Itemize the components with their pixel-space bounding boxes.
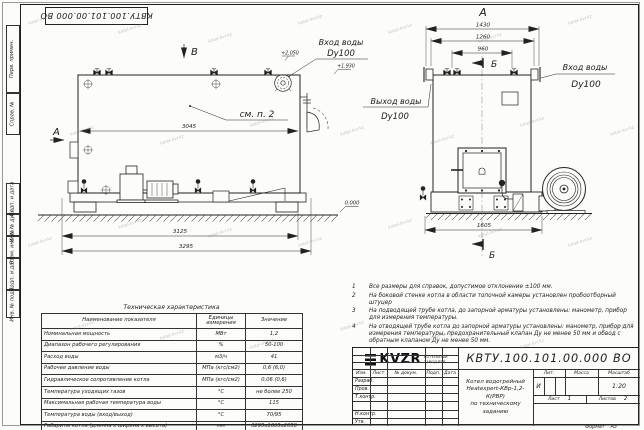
valve-handle-icon [250, 180, 256, 193]
scale-value: 1:20 [598, 377, 640, 395]
param-value: 1,2 [246, 329, 303, 341]
tech-table: Наименование показателя Единицы измерени… [41, 313, 303, 430]
notes-list: 1 Все размеры для справок, допустимое от… [349, 284, 636, 346]
format-value: А3 [611, 425, 617, 430]
table-row: Рабочее давление воды МПа (кгс/см2) 0,6 … [42, 363, 303, 375]
param-value: 115 [246, 398, 303, 410]
doc-name-line: Котел водогрейный [466, 379, 525, 386]
note-text: На боковой стенке котла в области топочн… [369, 293, 636, 307]
inlet-dn-front: Dy100 [571, 80, 601, 90]
valve-icon [454, 69, 461, 75]
section-mark-b-top: Б [491, 60, 497, 70]
param-units: °С [197, 386, 246, 398]
inlet-label-side: Вход воды [319, 38, 364, 47]
valve-icon [511, 69, 518, 75]
grid-line [353, 355, 458, 356]
param-value: 70/95 [246, 410, 303, 422]
col-header: Единицы измерения [197, 314, 246, 329]
inlet-dn-side: Dy100 [327, 49, 355, 59]
side-view [38, 75, 338, 222]
view-mark-a: А [52, 127, 60, 138]
level-mark-zero: 0.000 [345, 201, 361, 207]
param-name: Гидравлическое сопротивление котла [42, 375, 197, 387]
param-units: мм [197, 421, 246, 430]
lit-value: И [533, 377, 544, 395]
valve-handle-icon [420, 187, 426, 200]
note-number: 4 [349, 324, 369, 345]
table-header-row: Наименование показателя Единицы измерени… [42, 314, 303, 329]
see-note-label: см. п. 2 [240, 110, 275, 120]
param-value: 50-100 [246, 340, 303, 352]
sheets-label: Листов [599, 397, 616, 402]
valve-icon [444, 69, 451, 75]
mass-header: Масса [565, 369, 598, 377]
note-item: 2 На боковой стенке котла в области топо… [349, 293, 636, 307]
front-view [424, 56, 592, 257]
sheets-cell: Листов 2 [586, 395, 640, 403]
table-row: Температура уходящих газов °С не более 2… [42, 386, 303, 398]
title-block: Изм. Лист № докум. Подп. Дата Разраб. Пр… [352, 347, 639, 425]
dim-960: 960 [478, 47, 489, 53]
param-units: МПа (кгс/см2) [197, 363, 246, 375]
role-nkontr: Н.контр. [353, 410, 387, 418]
front-view-label: А [478, 6, 487, 19]
param-name: Температура уходящих газов [42, 386, 197, 398]
note-item: 1 Все размеры для справок, допустимое от… [349, 284, 636, 291]
note-number: 3 [349, 308, 369, 322]
doc-name-line: Heatexpert-КВр-1,2-К(РВР) [458, 386, 533, 401]
grid-line [387, 348, 388, 426]
table-row: Максимальная рабочая температура воды °С… [42, 398, 303, 410]
table-row: Температура воды (вход/выход) °С 70/95 [42, 410, 303, 422]
param-units: % [197, 340, 246, 352]
dim-1605: 1605 [477, 223, 492, 229]
role-utv: Утв. [353, 418, 387, 426]
param-name: Рабочее давление воды [42, 363, 197, 375]
param-units: м3/ч [197, 352, 246, 364]
level-mark-1930: +1.930 [337, 64, 355, 70]
view-mark-b: В [191, 47, 198, 58]
lit-header: Лит. [533, 369, 565, 377]
valve-icon [211, 69, 218, 75]
rev-header-list: Лист [370, 369, 387, 377]
level-mark-2050: +2.050 [281, 51, 299, 57]
valve-handle-icon [81, 180, 87, 193]
role-prov: Пров. [353, 385, 387, 393]
param-units: °С [197, 410, 246, 422]
param-name: Максимальная рабочая температура воды [42, 398, 197, 410]
note-item: 4 На отводящей трубе котла до запорной а… [349, 324, 636, 345]
sheet-label: Лист [548, 397, 560, 402]
datum-target-icon [101, 185, 111, 195]
dim-3125: 3125 [173, 229, 188, 235]
valve-icon [94, 69, 101, 75]
datum-target-icon [83, 79, 93, 89]
col-header: Наименование показателя [42, 314, 197, 329]
grid-line [555, 377, 556, 395]
grid-line [425, 348, 426, 426]
side-view-dimensions [50, 44, 368, 255]
doc-name: Котел водогрейный Heatexpert-КВр-1,2-К(Р… [458, 369, 533, 426]
rev-header-podp: Подп. [425, 369, 442, 377]
outlet-label-front: Выход воды [371, 97, 422, 106]
tech-table-title: Техническая характеристика [41, 304, 302, 311]
outlet-dn-front: Dy100 [381, 112, 409, 122]
note-item: 3 На подводящей трубе котла, до запорной… [349, 308, 636, 322]
sheet-cell: Лист 1 [533, 395, 586, 403]
param-units: МВт [197, 329, 246, 341]
param-name: Температура воды (вход/выход) [42, 410, 197, 422]
param-units: МПа (кгс/см2) [197, 375, 246, 387]
sheets-value: 2 [624, 396, 627, 402]
role-razrab: Разраб. [353, 377, 387, 385]
role-blank [353, 401, 387, 410]
param-value: 0,06 (0,6) [246, 375, 303, 387]
note-text: Все размеры для справок, допустимое откл… [369, 284, 636, 291]
table-row: Расход воды м3/ч 41 [42, 352, 303, 364]
datum-target-icon [83, 145, 93, 155]
param-value: не более 250 [246, 386, 303, 398]
param-value: 3295х1605х2050 [246, 421, 303, 430]
datum-target-icon [211, 79, 221, 89]
doc-name-line: по техническому заданию [458, 401, 533, 416]
doc-number: КВТУ.100.101.00.000 ВО [458, 348, 640, 369]
format-label-cell: Формат А3 [566, 425, 636, 430]
table-row: Гидравлическое сопротивление котла МПа (… [42, 375, 303, 387]
table-row: Габариты котла (длинна х ширина х высота… [42, 421, 303, 430]
tech-characteristics: Техническая характеристика Наименование … [41, 304, 302, 430]
param-name: Габариты котла (длинна х ширина х высота… [42, 421, 197, 430]
note-text: На отводящей трубе котла до запорной арм… [369, 324, 636, 345]
grid-line [533, 403, 640, 404]
format-label: Формат [585, 425, 604, 430]
rev-header-izm: Изм. [353, 369, 370, 377]
dim-1430: 1430 [476, 23, 491, 29]
col-header: Значение [246, 314, 303, 329]
param-name: Расход воды [42, 352, 197, 364]
dim-3045: 3045 [182, 124, 197, 130]
sheet-value: 1 [568, 396, 571, 402]
inlet-label-front: Вход воды [563, 63, 608, 72]
rev-header-docnum: № докум. [387, 369, 425, 377]
param-value: 41 [246, 352, 303, 364]
drawing-sheet: КВТУ.100.101.00.000 ВО Перв. примен. Спр… [0, 0, 644, 430]
scale-header: Масштаб [598, 369, 640, 377]
note-number: 1 [349, 284, 369, 291]
valve-icon [106, 69, 113, 75]
valve-handle-icon [195, 180, 201, 193]
table-row: Номинальная мощность МВт 1,2 [42, 329, 303, 341]
rev-header-data: Дата [442, 369, 458, 377]
side-view-valves [81, 69, 271, 195]
grid-line [442, 348, 443, 426]
grid-line [353, 362, 458, 363]
param-name: Диапазон рабочего регулирования [42, 340, 197, 352]
param-value: 0,6 (6,0) [246, 363, 303, 375]
valve-icon [265, 69, 272, 75]
note-text: На подводящей трубе котла, до запорной а… [369, 308, 636, 322]
table-row: Диапазон рабочего регулирования % 50-100 [42, 340, 303, 352]
note-number: 2 [349, 293, 369, 307]
param-units: °С [197, 398, 246, 410]
dim-3295: 3295 [179, 244, 194, 250]
dim-1260: 1260 [476, 35, 491, 41]
section-mark-b-bottom: Б [489, 251, 495, 261]
grid-line [544, 377, 545, 395]
role-tkontr: Т.контр. [353, 393, 387, 401]
param-name: Номинальная мощность [42, 329, 197, 341]
